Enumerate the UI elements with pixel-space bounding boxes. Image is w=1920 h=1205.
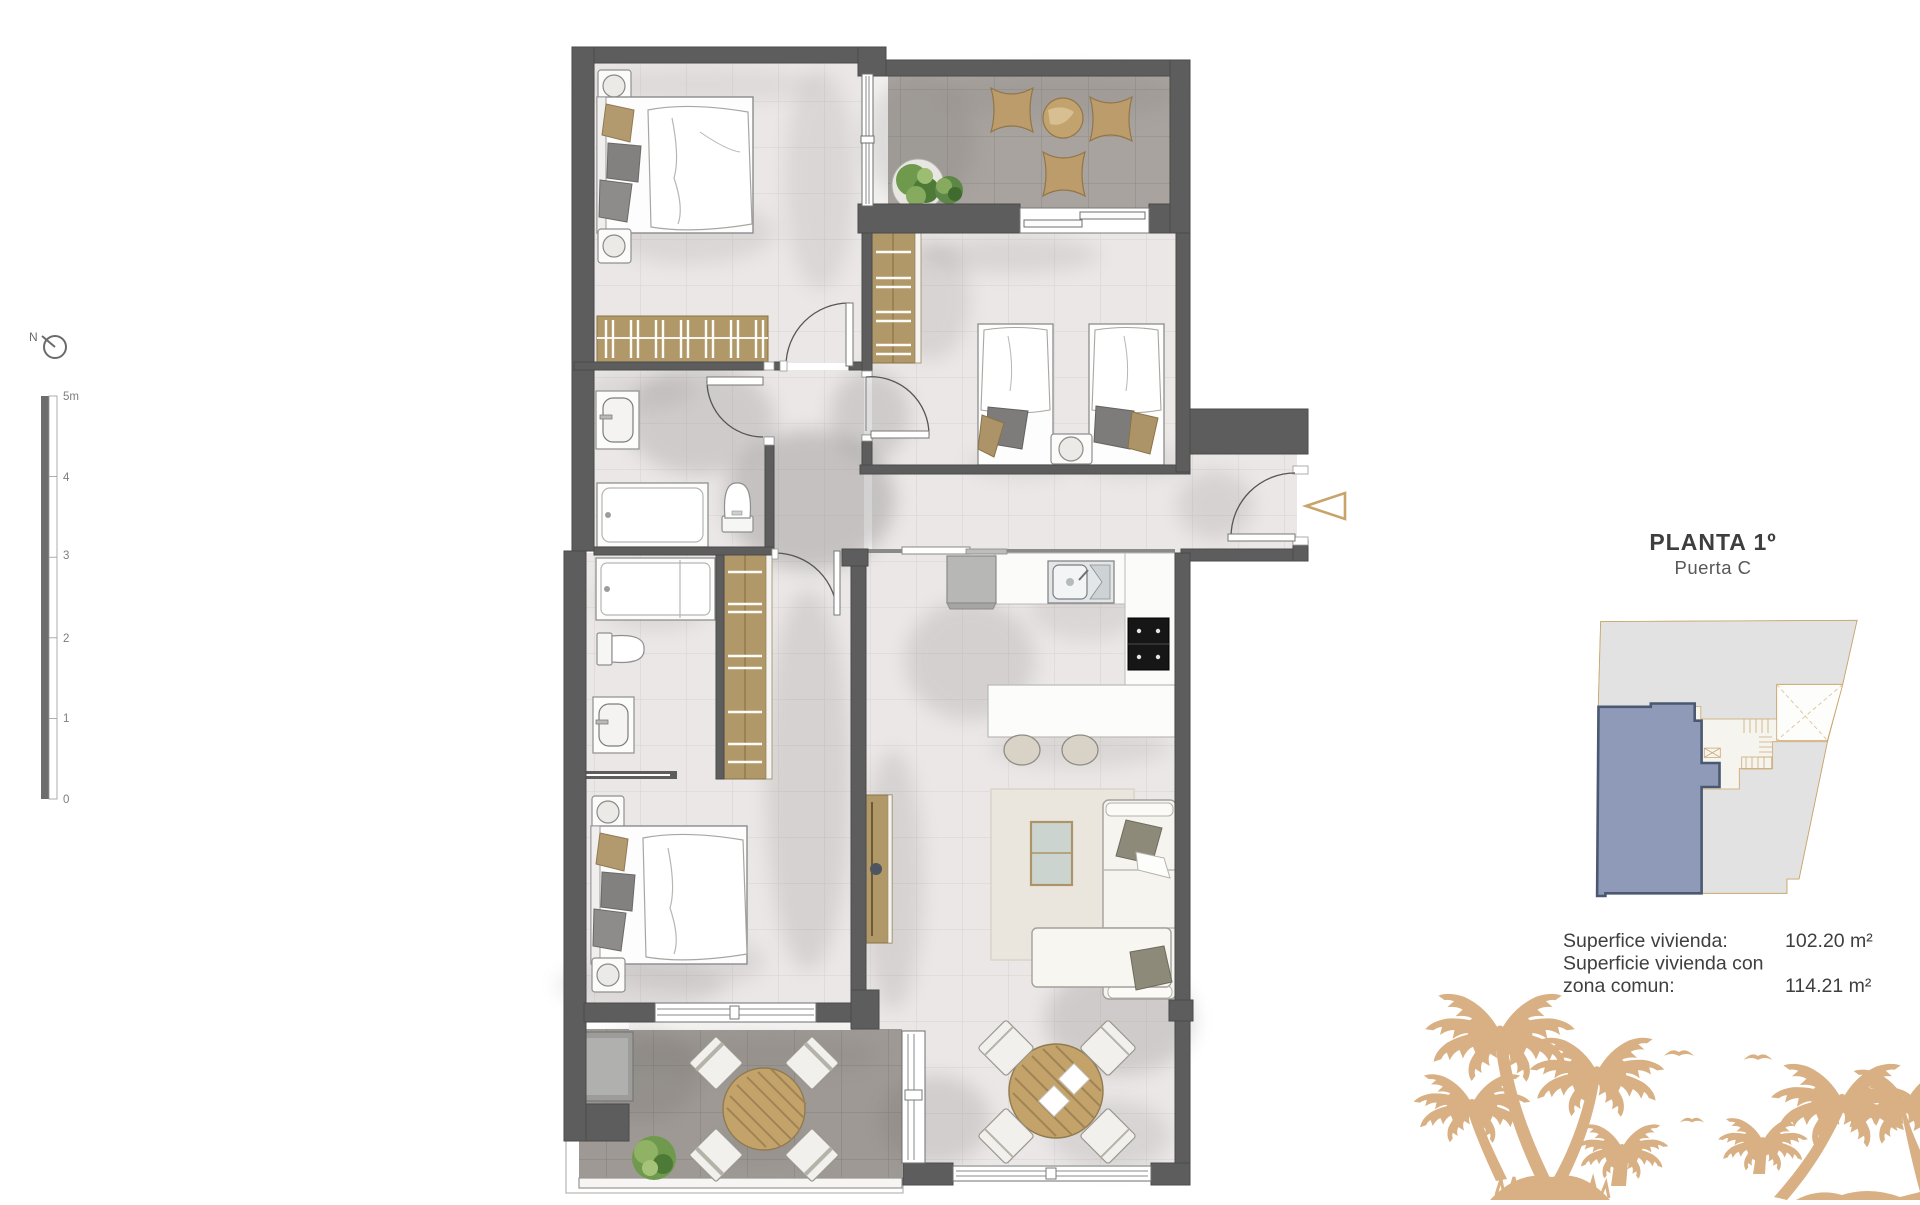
svg-text:1: 1 [63,713,69,725]
svg-text:2: 2 [63,633,69,645]
svg-text:PLANTA 1º: PLANTA 1º [1649,529,1776,555]
svg-text:4: 4 [63,472,70,484]
svg-text:N: N [29,330,38,344]
svg-text:Puerta C: Puerta C [1674,557,1751,578]
svg-text:3: 3 [63,550,69,562]
svg-text:102.20 m²: 102.20 m² [1785,930,1873,952]
svg-text:Superficie vivienda con: Superficie vivienda con [1563,953,1764,975]
svg-text:Superfice vivienda:: Superfice vivienda: [1563,930,1728,952]
svg-text:zona comun:: zona comun: [1563,975,1675,997]
svg-text:0: 0 [63,794,69,806]
svg-text:5m: 5m [63,391,79,403]
svg-text:114.21 m²: 114.21 m² [1785,975,1872,997]
